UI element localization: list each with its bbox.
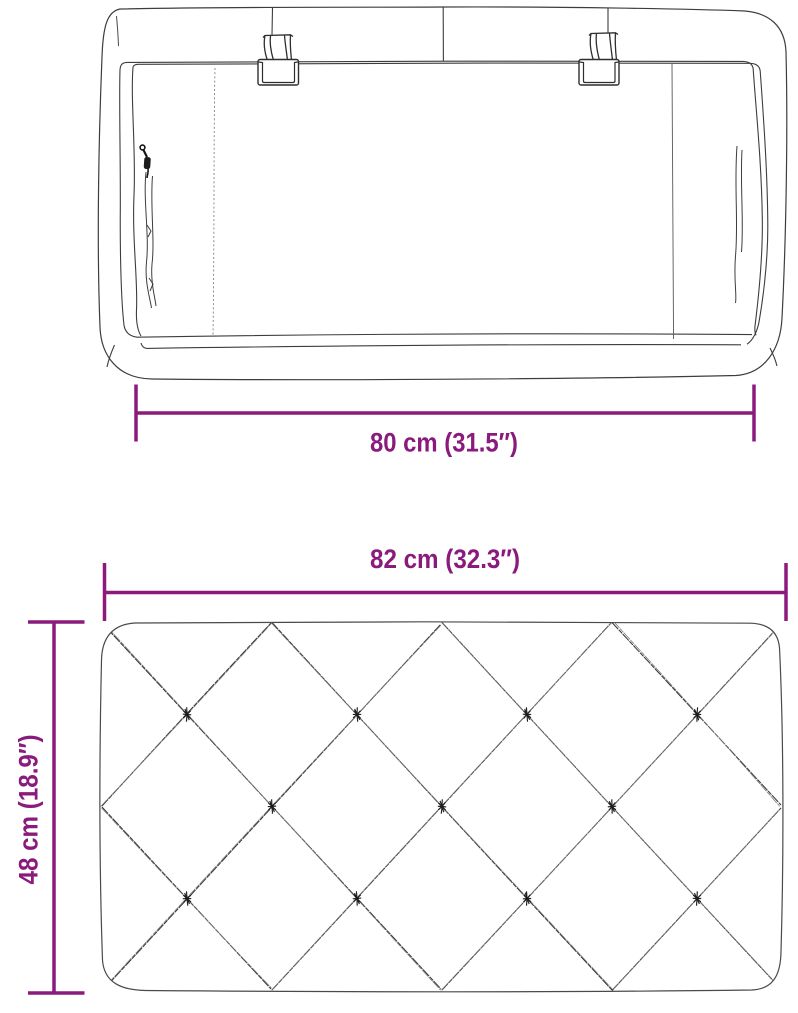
svg-text:82 cm (32.3″): 82 cm (32.3″) <box>370 544 520 574</box>
svg-text:48 cm (18.9″): 48 cm (18.9″) <box>14 735 44 885</box>
svg-text:80 cm (31.5″): 80 cm (31.5″) <box>370 428 518 458</box>
